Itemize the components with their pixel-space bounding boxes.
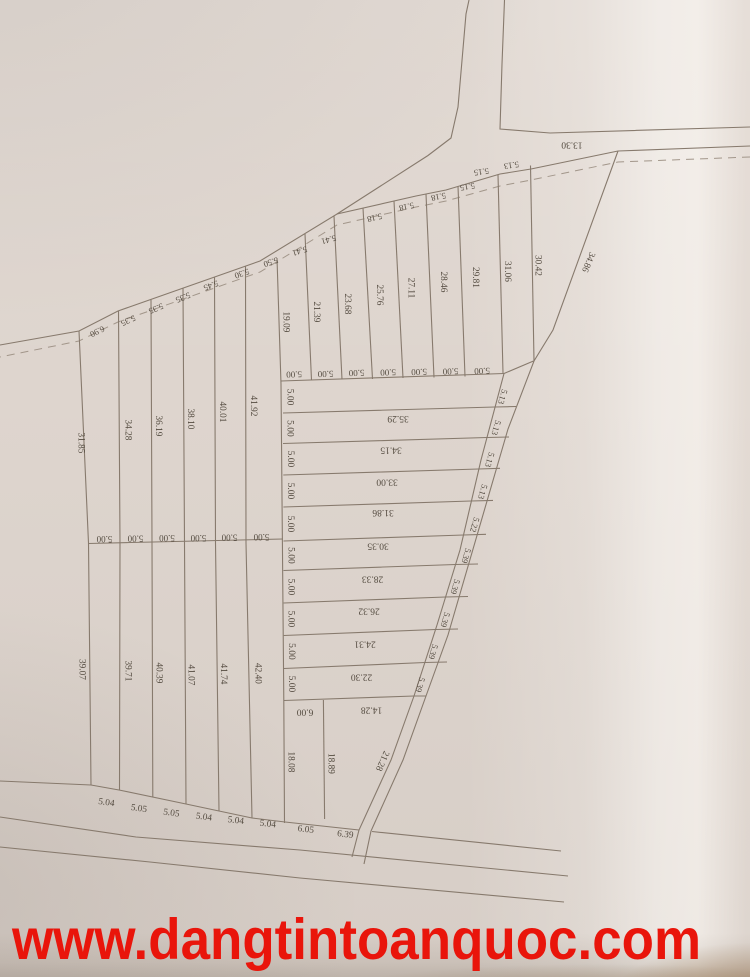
svg-text:5.00: 5.00 xyxy=(96,534,112,544)
svg-text:39.07: 39.07 xyxy=(77,659,87,680)
svg-text:34.15: 34.15 xyxy=(380,445,402,455)
svg-text:5.13: 5.13 xyxy=(503,159,519,171)
svg-text:14.28: 14.28 xyxy=(361,705,383,715)
svg-text:5.39: 5.39 xyxy=(460,547,474,564)
svg-text:39.71: 39.71 xyxy=(123,661,133,682)
svg-text:5.04: 5.04 xyxy=(259,819,277,831)
svg-text:28.46: 28.46 xyxy=(438,272,448,293)
svg-text:29.81: 29.81 xyxy=(470,267,480,288)
svg-text:5.00: 5.00 xyxy=(411,367,428,378)
svg-text:6.05: 6.05 xyxy=(297,824,315,836)
svg-text:41.07: 41.07 xyxy=(186,665,196,686)
svg-text:5.00: 5.00 xyxy=(317,369,334,380)
svg-text:5.39: 5.39 xyxy=(427,643,441,660)
svg-text:35.29: 35.29 xyxy=(387,413,409,423)
svg-text:40.39: 40.39 xyxy=(154,663,164,684)
svg-text:31.06: 31.06 xyxy=(502,261,512,282)
svg-text:18.89: 18.89 xyxy=(326,753,336,774)
svg-text:5.05: 5.05 xyxy=(130,803,148,815)
svg-text:38.10: 38.10 xyxy=(185,409,195,430)
svg-text:5.00: 5.00 xyxy=(286,611,296,628)
svg-text:5.00: 5.00 xyxy=(442,366,459,377)
svg-text:41.92: 41.92 xyxy=(248,396,258,417)
svg-text:5.15: 5.15 xyxy=(459,181,476,193)
svg-text:5.22: 5.22 xyxy=(468,516,482,533)
svg-text:6.00: 6.00 xyxy=(296,707,313,717)
svg-text:41.74: 41.74 xyxy=(218,664,228,685)
svg-text:5.00: 5.00 xyxy=(127,534,143,544)
svg-text:5.15: 5.15 xyxy=(473,166,489,178)
svg-text:5.00: 5.00 xyxy=(285,547,295,564)
svg-text:5.13: 5.13 xyxy=(483,451,497,468)
svg-text:5.04: 5.04 xyxy=(195,811,213,823)
svg-text:25.76: 25.76 xyxy=(374,285,384,306)
svg-text:13.30: 13.30 xyxy=(561,139,583,149)
svg-text:33.00: 33.00 xyxy=(376,476,398,486)
svg-text:5.00: 5.00 xyxy=(159,533,175,543)
svg-text:5.00: 5.00 xyxy=(285,420,295,437)
svg-text:5.00: 5.00 xyxy=(286,676,296,693)
svg-text:34.86: 34.86 xyxy=(579,250,597,273)
svg-text:5.04: 5.04 xyxy=(98,797,116,809)
svg-text:5.00: 5.00 xyxy=(221,533,237,543)
svg-text:5.00: 5.00 xyxy=(286,643,296,660)
svg-text:21.39: 21.39 xyxy=(311,302,321,323)
svg-text:31.85: 31.85 xyxy=(76,433,86,454)
svg-text:5.00: 5.00 xyxy=(285,516,295,533)
svg-text:5.35: 5.35 xyxy=(119,313,137,328)
svg-text:5.04: 5.04 xyxy=(227,815,245,827)
svg-text:24.31: 24.31 xyxy=(354,639,376,649)
svg-text:22.30: 22.30 xyxy=(351,672,373,682)
svg-text:5.00: 5.00 xyxy=(285,483,295,500)
svg-text:30.35: 30.35 xyxy=(367,541,389,551)
svg-text:5.00: 5.00 xyxy=(285,389,295,406)
svg-text:42.40: 42.40 xyxy=(253,663,263,684)
svg-text:5.39: 5.39 xyxy=(414,676,428,693)
svg-text:5.00: 5.00 xyxy=(285,451,295,468)
svg-text:5.05: 5.05 xyxy=(163,807,181,819)
svg-text:5.00: 5.00 xyxy=(286,369,303,380)
svg-text:30.42: 30.42 xyxy=(533,255,543,276)
svg-text:31.86: 31.86 xyxy=(372,507,394,517)
svg-text:34.28: 34.28 xyxy=(123,420,133,441)
svg-text:21.28: 21.28 xyxy=(373,749,391,772)
svg-text:40.01: 40.01 xyxy=(217,402,227,423)
svg-text:5.00: 5.00 xyxy=(190,533,206,543)
svg-text:23.68: 23.68 xyxy=(342,294,352,315)
svg-text:5.00: 5.00 xyxy=(253,532,269,542)
svg-text:6.90: 6.90 xyxy=(88,324,106,340)
svg-text:28.33: 28.33 xyxy=(362,574,384,584)
svg-text:36.19: 36.19 xyxy=(153,416,163,437)
svg-text:5.35: 5.35 xyxy=(147,301,165,316)
svg-text:5.00: 5.00 xyxy=(380,367,397,378)
svg-text:19.09: 19.09 xyxy=(281,312,291,333)
svg-text:5.00: 5.00 xyxy=(286,579,296,596)
svg-text:5.13: 5.13 xyxy=(496,388,510,405)
svg-text:5.30: 5.30 xyxy=(233,267,250,281)
svg-text:5.00: 5.00 xyxy=(474,366,491,377)
svg-text:5.35: 5.35 xyxy=(174,290,192,305)
svg-text:18.08: 18.08 xyxy=(286,752,296,773)
svg-text:6.39: 6.39 xyxy=(337,829,355,841)
svg-text:5.00: 5.00 xyxy=(348,368,365,379)
svg-text:26.32: 26.32 xyxy=(358,606,380,616)
svg-text:5.18: 5.18 xyxy=(366,211,383,224)
svg-text:27.11: 27.11 xyxy=(406,278,416,299)
svg-text:5.18: 5.18 xyxy=(398,200,415,213)
